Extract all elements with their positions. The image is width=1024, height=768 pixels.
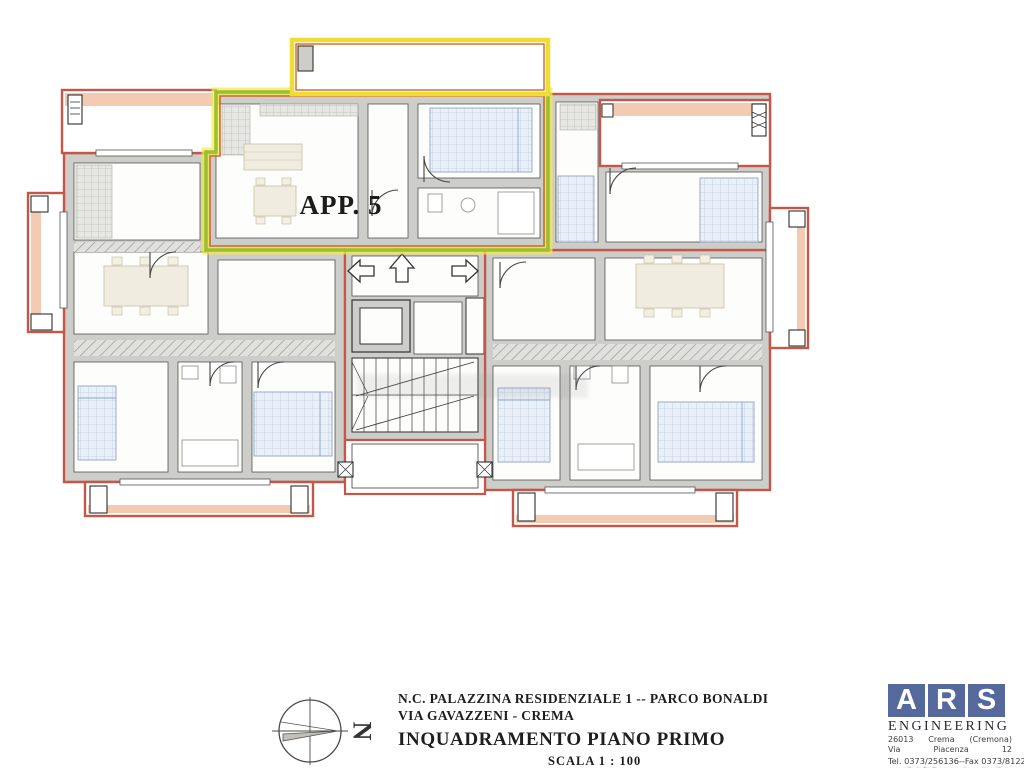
- scanned-floorplan-sheet: APP. 5 N N.C. PALAZZINA RESIDENZIALE 1 -…: [0, 0, 1024, 768]
- balcony-right: [770, 208, 808, 348]
- street-number: 12: [1002, 745, 1012, 755]
- apartment-label: APP. 5: [299, 190, 382, 220]
- drawing-title: INQUADRAMENTO PIANO PRIMO: [398, 729, 868, 751]
- street-name: Piacenza: [933, 745, 968, 755]
- stair-core: [338, 250, 492, 494]
- logo-letter-r: R: [928, 684, 965, 717]
- street-prefix: Via: [888, 745, 900, 755]
- logo-letter-a: A: [888, 684, 925, 717]
- company-logo-block: A R S ENGINEERING 26013 Crema (Cremona) …: [888, 684, 1012, 768]
- postal-code: 26013: [888, 735, 913, 745]
- floor-plan-drawing: APP. 5 N: [0, 0, 1024, 768]
- entrance-vestibule: [338, 440, 492, 494]
- balcony-bottom-right: [513, 490, 737, 526]
- city: Crema: [928, 735, 954, 745]
- balcony-left: [28, 193, 64, 332]
- ars-logo-icon: A R S: [888, 684, 1012, 717]
- company-address-line-1: 26013 Crema (Cremona): [888, 735, 1012, 745]
- compass-north-label: N: [348, 722, 377, 741]
- company-name: ENGINEERING: [888, 719, 1012, 735]
- compass-needle: [283, 731, 338, 741]
- company-phone-fax: Tel. 0373/256136--Fax 0373/81221: [888, 756, 1012, 767]
- province: (Cremona): [969, 735, 1012, 745]
- balcony-bottom-left: [85, 482, 313, 516]
- project-line-1: N.C. PALAZZINA RESIDENZIALE 1 -- PARCO B…: [398, 691, 868, 707]
- project-line-2: VIA GAVAZZENI - CREMA: [398, 708, 868, 724]
- company-address-line-2: Via Piacenza 12: [888, 745, 1012, 755]
- elevator: [352, 300, 410, 352]
- balcony-top-right: [600, 100, 770, 166]
- north-compass-icon: N: [272, 697, 377, 765]
- logo-letter-s: S: [968, 684, 1005, 717]
- balcony-app5-yellow: [292, 40, 548, 94]
- title-block: N.C. PALAZZINA RESIDENZIALE 1 -- PARCO B…: [398, 691, 868, 768]
- scan-smudge: [356, 374, 588, 398]
- scale-label: SCALA 1 : 100: [548, 754, 868, 768]
- balcony-top-left: [62, 90, 216, 153]
